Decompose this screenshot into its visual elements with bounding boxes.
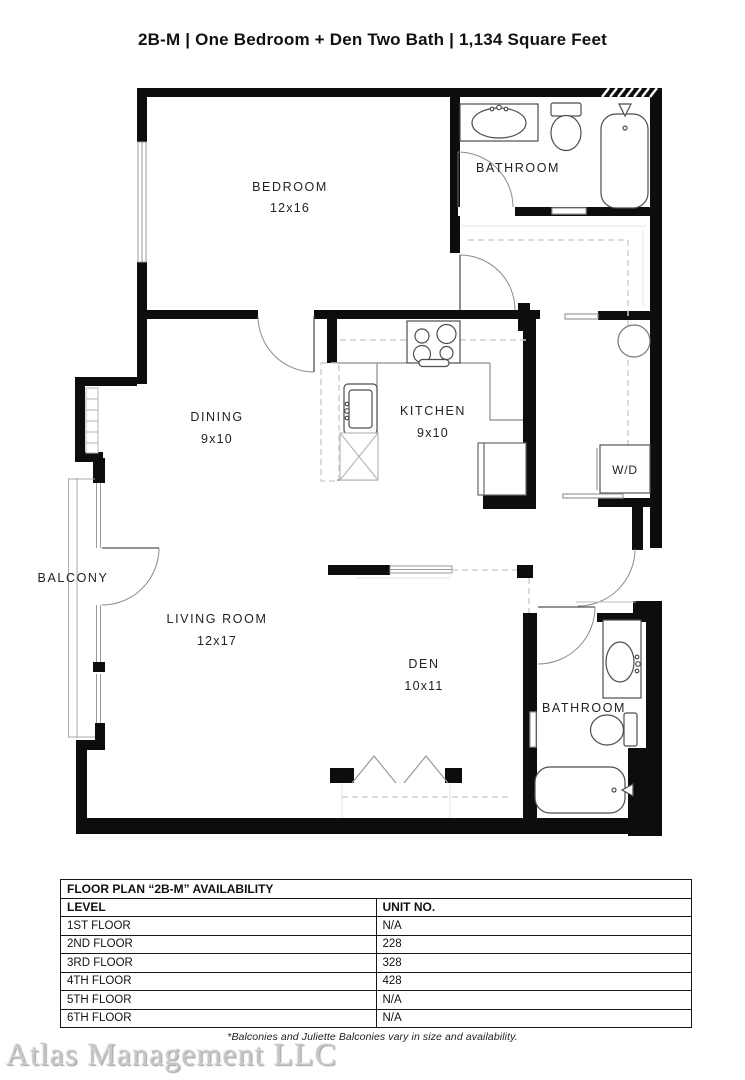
room-dims-dining: 9x10 — [201, 432, 233, 446]
stove-icon — [407, 321, 460, 367]
bathroom1-bathtub-icon — [601, 104, 648, 208]
floor-plan: BEDROOM 12x16 BATHROOM DINING 9x10 KITCH… — [0, 0, 745, 860]
unit-cell: N/A — [376, 1009, 692, 1028]
shelf-icon-2 — [563, 494, 623, 498]
room-label-kitchen: KITCHEN — [400, 404, 466, 418]
unit-cell: 328 — [376, 954, 692, 973]
balcony-sliding-door — [97, 483, 101, 723]
room-dims-living-room: 12x17 — [197, 634, 237, 648]
table-row: 4TH FLOOR 428 — [61, 972, 692, 991]
availability-table-title-row: FLOOR PLAN “2B-M” AVAILABILITY — [61, 880, 692, 899]
bathroom2-vanity-sink-icon — [603, 620, 641, 698]
room-label-dining: DINING — [190, 410, 243, 424]
dining-door-swing — [258, 316, 314, 372]
column-header-unit-no: UNIT NO. — [376, 898, 692, 917]
unit-cell: 428 — [376, 972, 692, 991]
table-row: 6TH FLOOR N/A — [61, 1009, 692, 1028]
floor-plan-flyer: { "title": "2B-M | One Bedroom + Den Two… — [0, 0, 745, 1080]
availability-table: FLOOR PLAN “2B-M” AVAILABILITY LEVEL UNI… — [60, 879, 692, 1028]
windows — [68, 142, 452, 738]
den-bifold-doors-icon — [352, 756, 448, 783]
level-cell: 6TH FLOOR — [61, 1009, 377, 1028]
unit-cell: N/A — [376, 991, 692, 1010]
floor-plan-drawing: BEDROOM 12x16 BATHROOM DINING 9x10 KITCH… — [0, 0, 745, 860]
company-watermark: Atlas Management LLC — [6, 1036, 337, 1073]
level-cell: 1ST FLOOR — [61, 917, 377, 936]
availability-table-title: FLOOR PLAN “2B-M” AVAILABILITY — [61, 880, 692, 899]
water-heater-icon — [618, 325, 650, 357]
unit-cell: 228 — [376, 935, 692, 954]
bathroom2-toilet-icon — [591, 713, 638, 746]
table-row: 2ND FLOOR 228 — [61, 935, 692, 954]
availability-table-header-row: LEVEL UNIT NO. — [61, 898, 692, 917]
room-dims-den: 10x11 — [404, 679, 443, 693]
column-header-level: LEVEL — [61, 898, 377, 917]
room-dims-bedroom: 12x16 — [270, 201, 310, 215]
den-window — [390, 566, 452, 573]
room-label-den: DEN — [408, 657, 439, 671]
towel-bar-icon — [552, 208, 586, 214]
table-row: 5TH FLOOR N/A — [61, 991, 692, 1010]
level-cell: 2ND FLOOR — [61, 935, 377, 954]
room-label-bedroom: BEDROOM — [252, 180, 328, 194]
room-dims-kitchen: 9x10 — [417, 426, 449, 440]
bathroom2-door-swing — [538, 607, 595, 664]
shelf-icon — [565, 314, 598, 319]
bedroom-window — [138, 142, 146, 262]
balcony-door-swing — [102, 548, 159, 605]
balcony-rail — [68, 478, 95, 738]
level-cell: 5TH FLOOR — [61, 991, 377, 1010]
room-label-balcony: BALCONY — [38, 571, 109, 585]
towel-bar-icon-2 — [530, 712, 536, 747]
table-row: 1ST FLOOR N/A — [61, 917, 692, 936]
refrigerator-icon — [478, 443, 526, 495]
table-row: 3RD FLOOR 328 — [61, 954, 692, 973]
room-labels: BEDROOM 12x16 BATHROOM DINING 9x10 KITCH… — [38, 161, 638, 715]
level-cell: 3RD FLOOR — [61, 954, 377, 973]
dishwasher-icon — [340, 433, 378, 480]
room-label-bathroom-top: BATHROOM — [476, 161, 560, 175]
bathroom1-toilet-icon — [551, 103, 581, 151]
bedroom-door-swing — [460, 255, 515, 310]
room-label-living-room: LIVING ROOM — [167, 612, 268, 626]
bathroom1-vanity-sink-icon — [460, 104, 538, 141]
unit-cell: N/A — [376, 917, 692, 936]
level-cell: 4TH FLOOR — [61, 972, 377, 991]
entry-door-swing — [576, 549, 636, 606]
bathroom2-bathtub-icon — [535, 767, 633, 813]
room-label-wd: W/D — [612, 463, 638, 477]
room-label-bathroom-lower: BATHROOM — [542, 701, 626, 715]
kitchen-sink-icon — [344, 384, 377, 434]
juliette-window — [86, 388, 98, 453]
